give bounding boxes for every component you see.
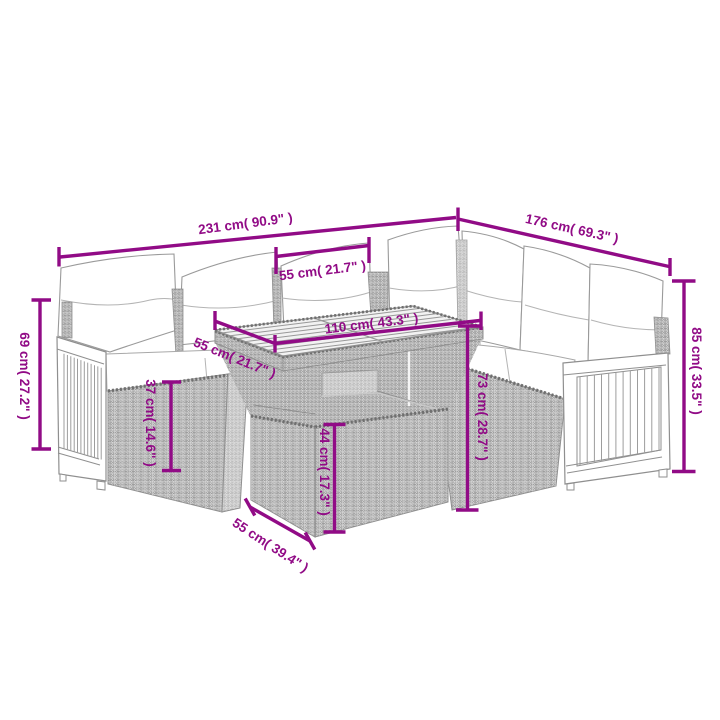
svg-text:69 cm( 27.2" ): 69 cm( 27.2" )	[17, 332, 32, 419]
svg-text:44 cm( 17.3" ): 44 cm( 17.3" )	[317, 428, 332, 515]
svg-text:37 cm( 14.6" ): 37 cm( 14.6" )	[143, 379, 158, 466]
svg-text:73 cm( 28.7" ): 73 cm( 28.7" )	[475, 373, 490, 460]
svg-text:85 cm( 33.5" ): 85 cm( 33.5" )	[689, 327, 704, 414]
